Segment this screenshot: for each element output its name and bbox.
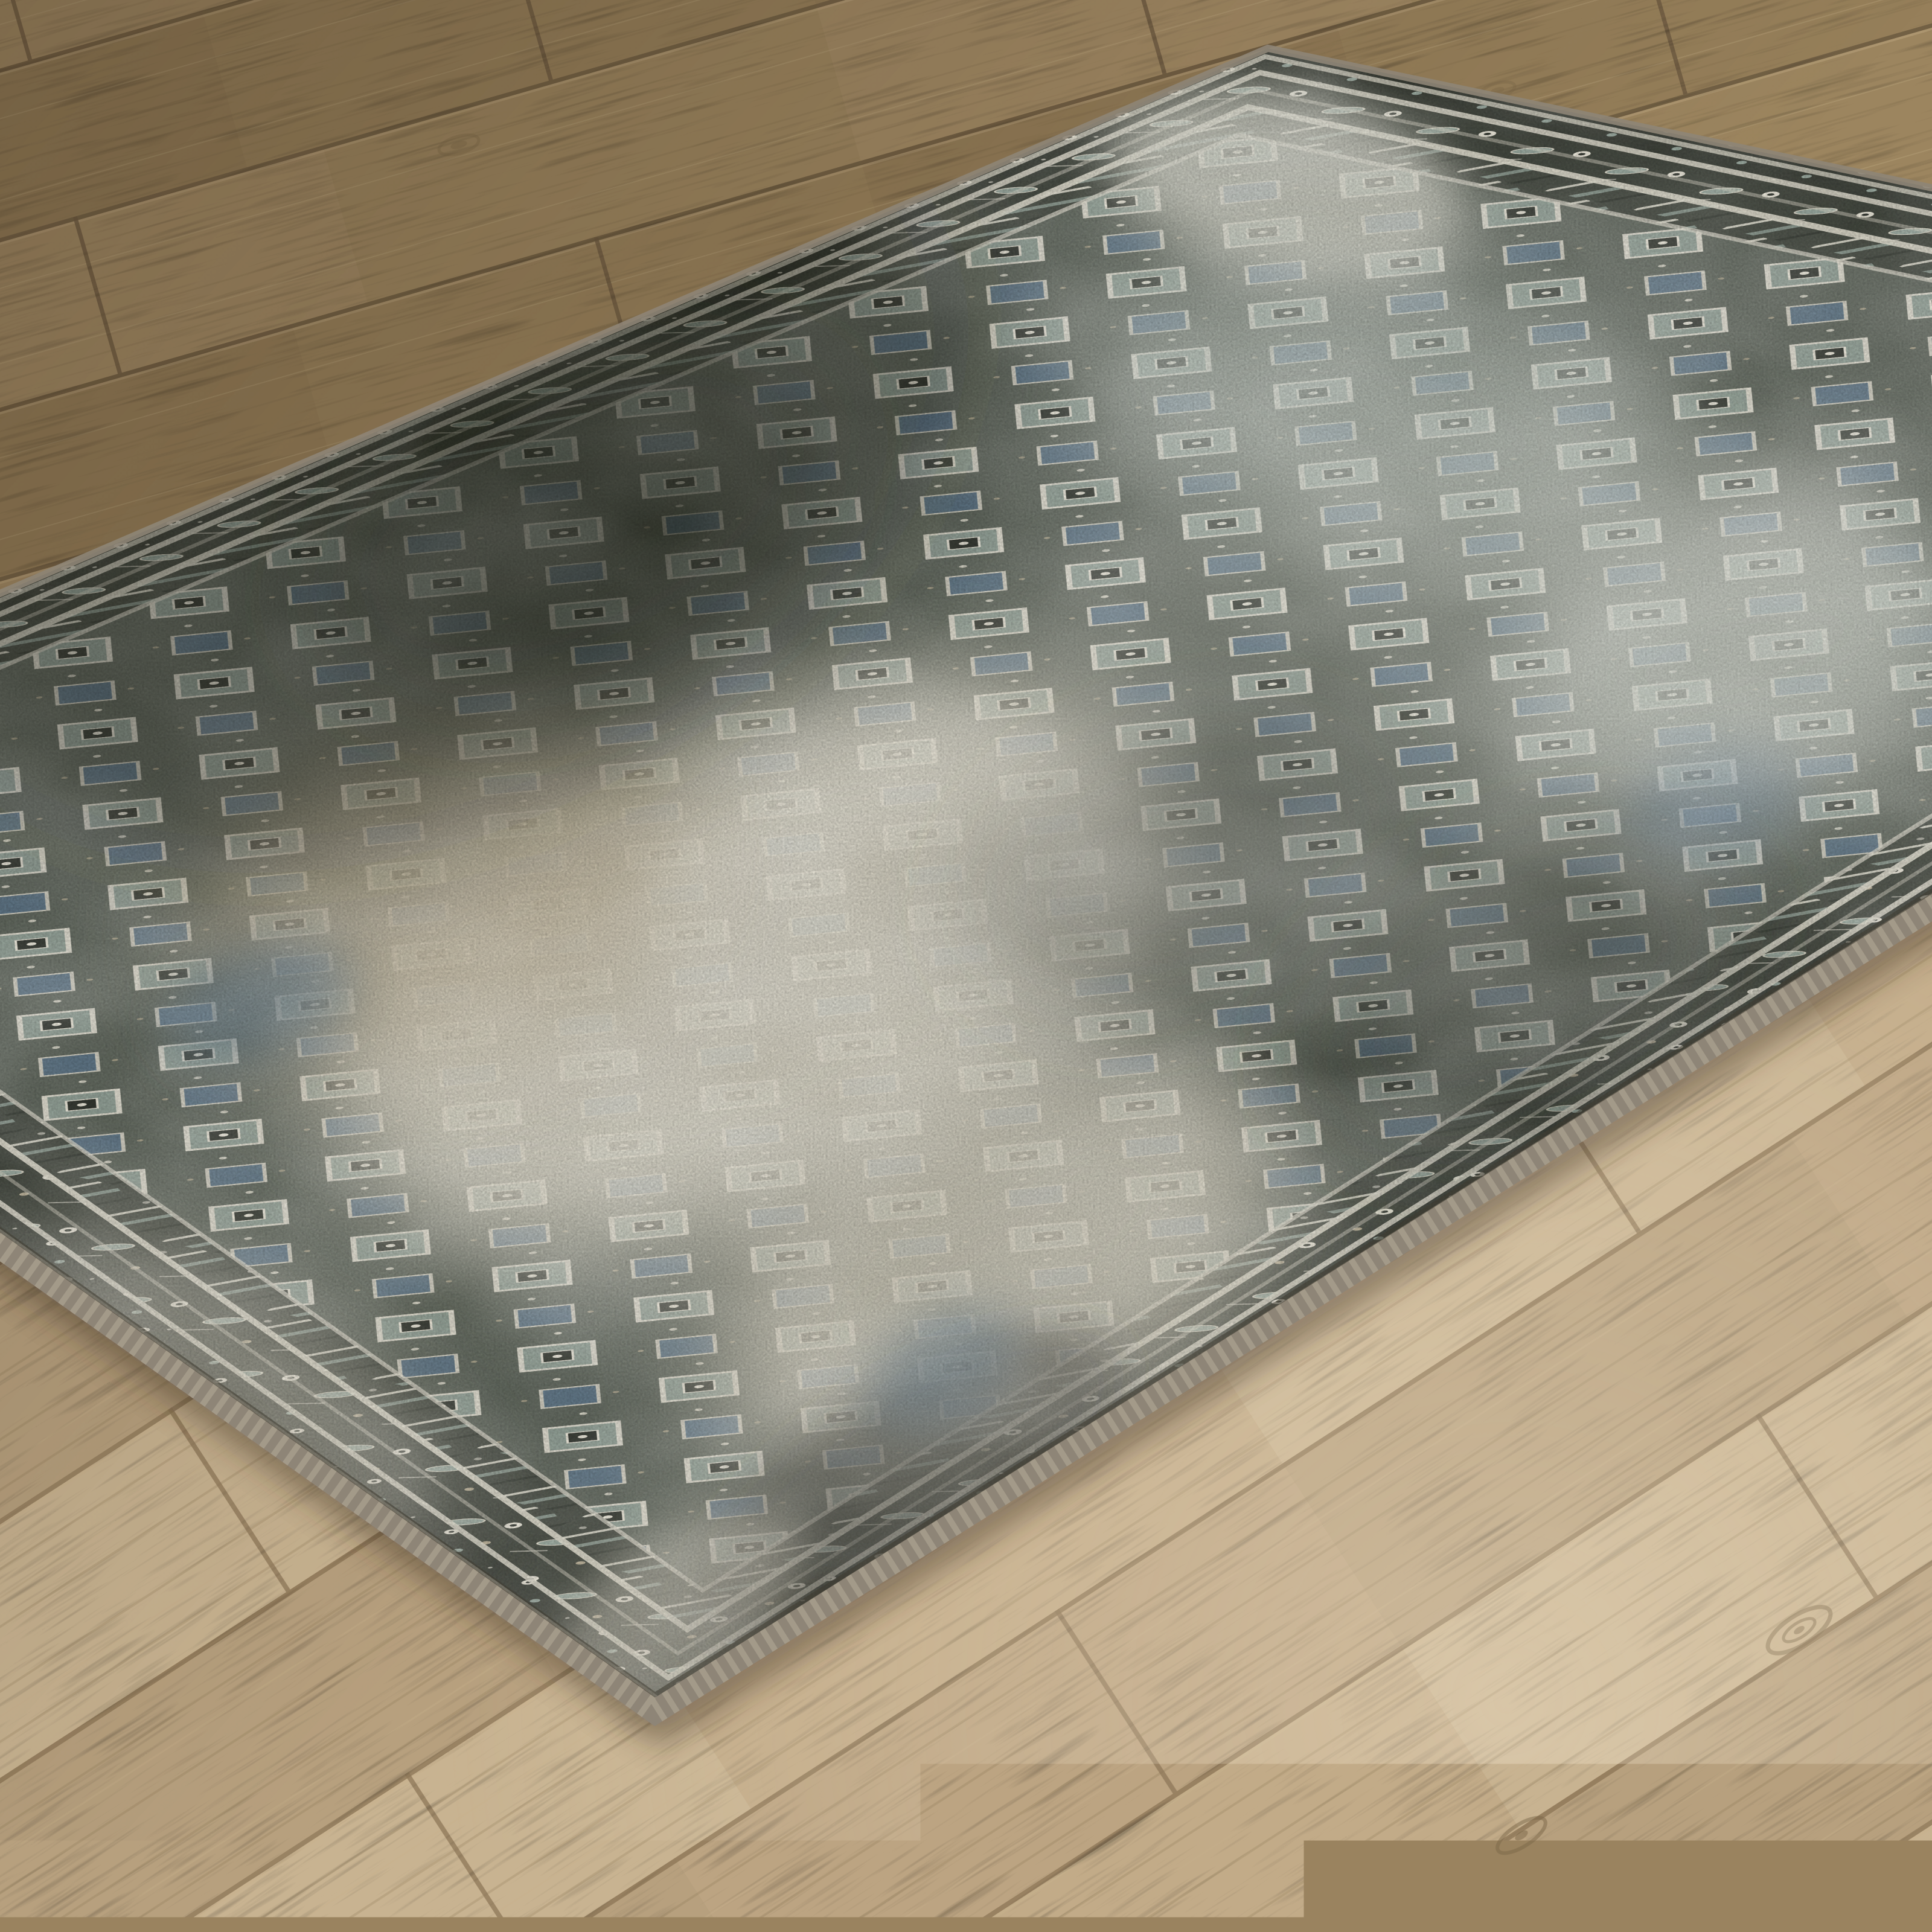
product-photo — [0, 0, 1932, 1932]
rug-on-floor-photo — [0, 0, 1932, 1932]
